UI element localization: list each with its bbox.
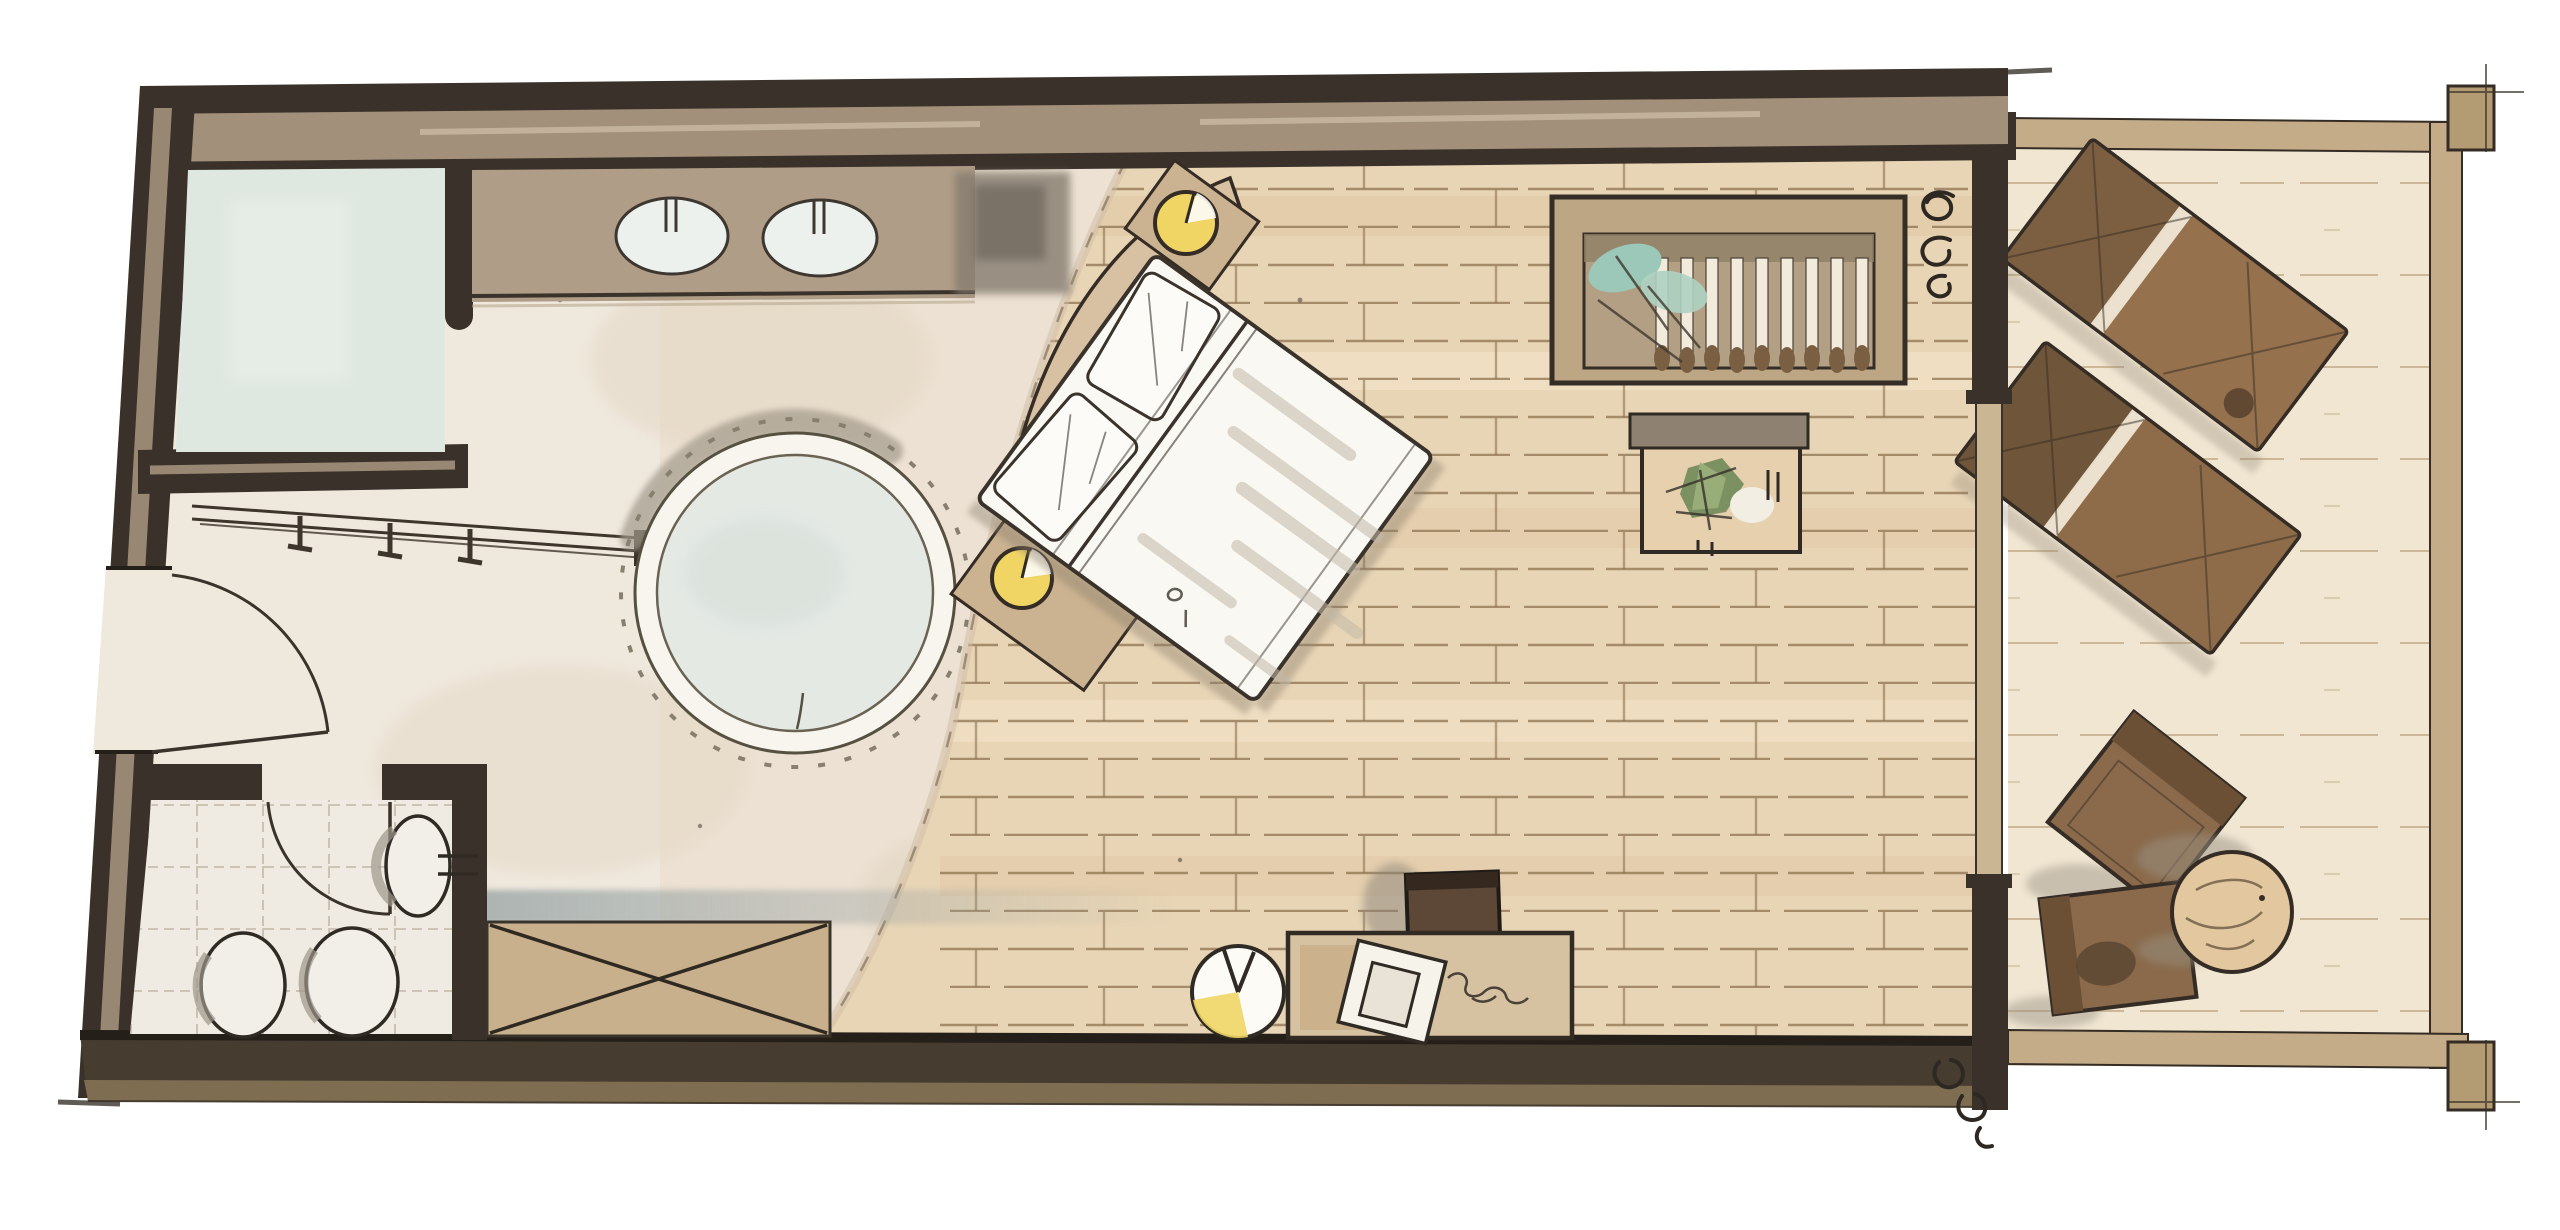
terrace (1942, 64, 2524, 1130)
sink-left (616, 198, 728, 274)
bedside-lamp-upper (1155, 192, 1217, 254)
floor-lamp (1192, 946, 1284, 1038)
wall-right-lower (1972, 884, 2008, 1110)
storage-bench-x (487, 922, 830, 1036)
sink-right (763, 200, 877, 276)
wall-right-upper (1972, 146, 2008, 398)
floor-shadow-smear (482, 890, 1172, 924)
vanity-with-two-sinks (472, 166, 975, 306)
gray-wash-niche (955, 172, 1070, 294)
corner-post-top (2448, 64, 2524, 152)
round-outdoor-table (2172, 852, 2292, 972)
railing-border-top (2008, 118, 2462, 152)
railing-border-bottom (2008, 1030, 2468, 1068)
corner-post-bottom (2448, 1040, 2520, 1130)
floor-plan-drawing (0, 0, 2560, 1230)
bidet (304, 928, 398, 1036)
wall-shower-stub (445, 164, 473, 330)
wc (120, 790, 478, 1045)
railing-border-right (2430, 122, 2462, 1068)
floor-plan-canvas (0, 0, 2560, 1230)
sliding-glass-door (1976, 398, 2002, 884)
plant-side-table (1630, 414, 1808, 556)
wardrobe-with-hangers (1552, 197, 1905, 383)
